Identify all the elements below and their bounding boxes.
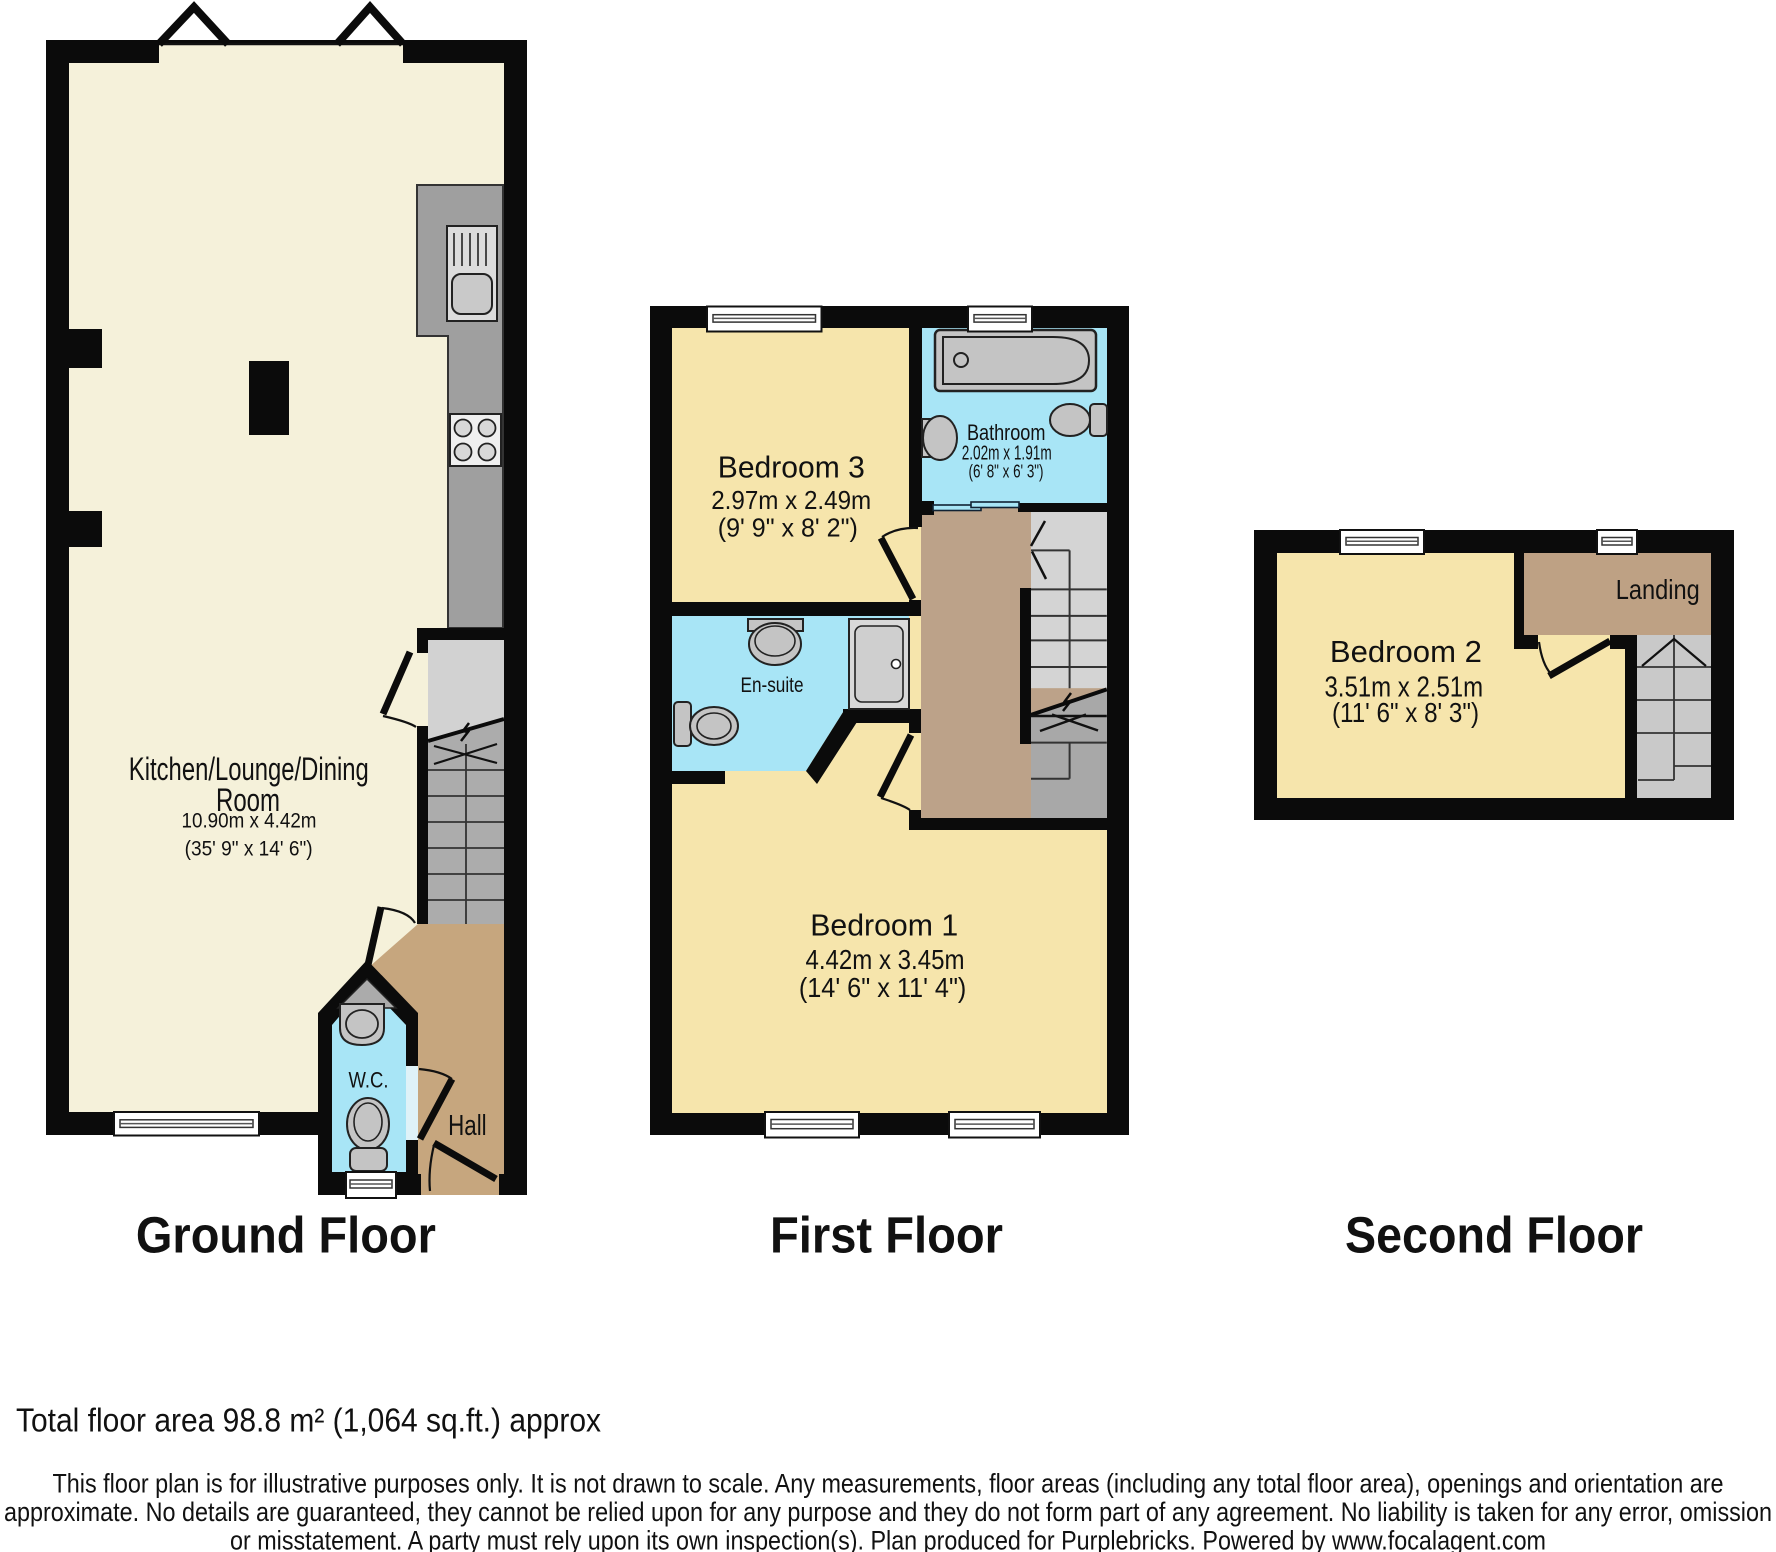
svg-text:Landing: Landing [1616, 574, 1700, 605]
svg-text:En-suite: En-suite [741, 673, 804, 697]
svg-text:Bathroom: Bathroom [967, 420, 1046, 445]
svg-text:Second Floor: Second Floor [1345, 1206, 1643, 1263]
svg-text:(14' 6" x 11' 4"): (14' 6" x 11' 4") [799, 972, 967, 1003]
svg-text:10.90m x 4.42m: 10.90m x 4.42m [182, 809, 317, 833]
svg-text:Bedroom 2: Bedroom 2 [1330, 634, 1482, 669]
svg-text:(9' 9" x 8' 2"): (9' 9" x 8' 2") [718, 513, 858, 543]
svg-text:4.42m x 3.45m: 4.42m x 3.45m [806, 944, 965, 975]
svg-text:2.97m x 2.49m: 2.97m x 2.49m [711, 485, 871, 515]
svg-text:W.C.: W.C. [349, 1067, 389, 1092]
svg-text:Bedroom 3: Bedroom 3 [718, 450, 865, 484]
svg-text:Total floor area 98.8 m² (1,06: Total floor area 98.8 m² (1,064 sq.ft.) … [16, 1402, 601, 1439]
svg-text:approximate. No details are gu: approximate. No details are guaranteed, … [4, 1497, 1772, 1527]
svg-text:Bedroom 1: Bedroom 1 [810, 909, 958, 943]
svg-text:This floor plan is for illustr: This floor plan is for illustrative purp… [53, 1469, 1724, 1499]
svg-text:Ground Floor: Ground Floor [136, 1206, 436, 1263]
svg-text:(35' 9" x 14' 6"): (35' 9" x 14' 6") [185, 837, 313, 861]
svg-text:First Floor: First Floor [770, 1206, 1003, 1263]
svg-text:(6' 8" x 6' 3"): (6' 8" x 6' 3") [969, 462, 1044, 482]
svg-text:Hall: Hall [448, 1110, 487, 1142]
svg-text:or misstatement. A party must: or misstatement. A party must rely upon … [230, 1526, 1546, 1552]
svg-text:(11' 6" x 8' 3"): (11' 6" x 8' 3") [1332, 697, 1479, 728]
